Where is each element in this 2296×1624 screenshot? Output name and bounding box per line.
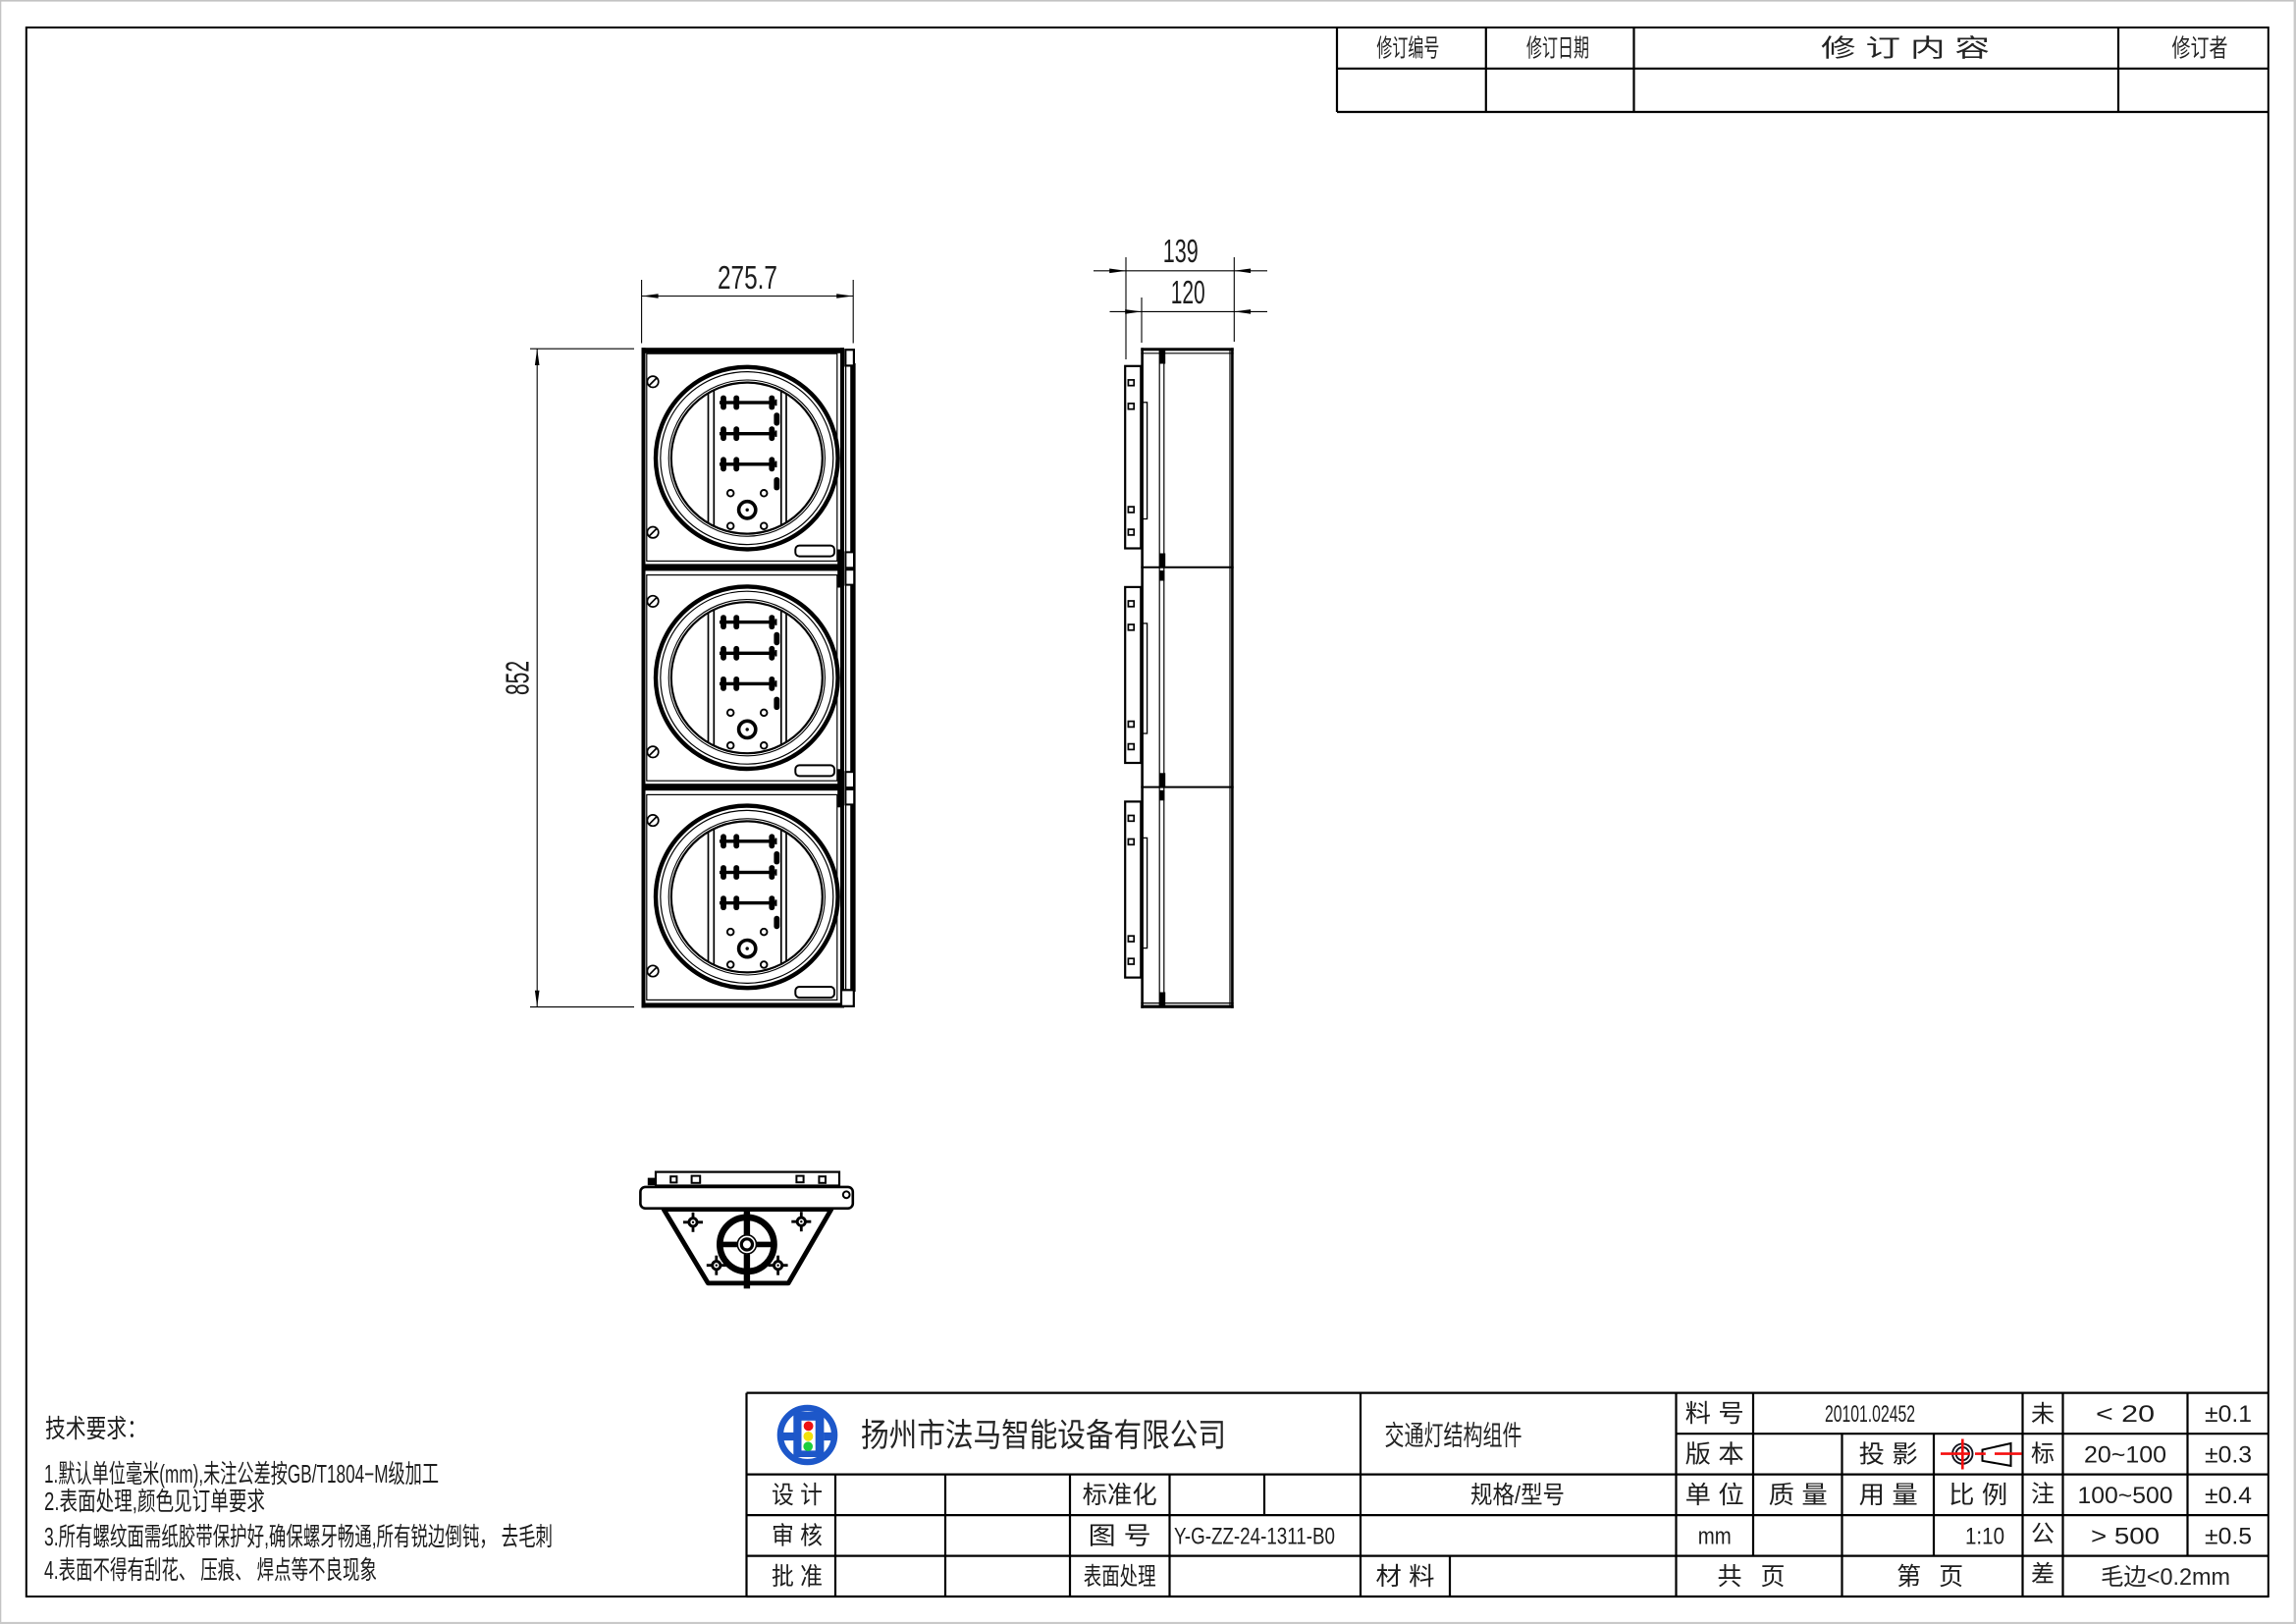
- svg-text:1:10: 1:10: [1965, 1523, 2004, 1549]
- svg-text:页: 页: [1760, 1563, 1785, 1591]
- svg-text:修订编号: 修订编号: [1376, 35, 1439, 63]
- svg-text:技术要求：: 技术要求：: [45, 1414, 147, 1443]
- svg-text:mm: mm: [1698, 1523, 1732, 1549]
- svg-text:公: 公: [2031, 1521, 2055, 1547]
- svg-text:1.默认单位毫米(mm),未注公差按GB/T1804−M级加: 1.默认单位毫米(mm),未注公差按GB/T1804−M级加工: [44, 1459, 439, 1489]
- svg-text:批 准: 批 准: [772, 1563, 823, 1591]
- svg-text:4.表面不得有刮花、 压痕、 焊点等不良现象: 4.表面不得有刮花、 压痕、 焊点等不良现象: [44, 1555, 377, 1585]
- svg-text:852: 852: [500, 661, 536, 695]
- svg-text:修订日期: 修订日期: [1526, 35, 1589, 63]
- svg-text:±0.1: ±0.1: [2205, 1401, 2252, 1428]
- svg-text:修 订 内 容: 修 订 内 容: [1821, 35, 1990, 63]
- svg-text:100~500: 100~500: [2078, 1483, 2173, 1509]
- svg-text:275.7: 275.7: [718, 259, 777, 296]
- svg-text:注: 注: [2031, 1481, 2055, 1507]
- svg-text:±0.3: ±0.3: [2205, 1441, 2252, 1468]
- svg-text:投 影: 投 影: [1859, 1440, 1918, 1468]
- svg-text:规格/型号: 规格/型号: [1470, 1482, 1565, 1509]
- svg-text:修订者: 修订者: [2172, 35, 2228, 63]
- svg-text:审 核: 审 核: [772, 1522, 823, 1549]
- svg-text:139: 139: [1163, 233, 1199, 269]
- svg-text:料 号: 料 号: [1685, 1400, 1744, 1428]
- svg-text:材 料: 材 料: [1376, 1563, 1435, 1591]
- svg-text:毛边<0.2mm: 毛边<0.2mm: [2101, 1564, 2230, 1591]
- svg-text:版 本: 版 本: [1685, 1440, 1744, 1468]
- svg-text:标准化: 标准化: [1083, 1482, 1157, 1509]
- svg-text:3.所有螺纹面需纸胶带保护好,确保螺牙畅通,所有锐边倒钝，: 3.所有螺纹面需纸胶带保护好,确保螺牙畅通,所有锐边倒钝， 去毛刺: [44, 1522, 553, 1551]
- svg-text:页: 页: [1939, 1563, 1963, 1591]
- svg-text:±0.5: ±0.5: [2205, 1523, 2252, 1549]
- svg-text:扬州市法马智能设备有限公司: 扬州市法马智能设备有限公司: [861, 1417, 1226, 1453]
- svg-text:20101.02452: 20101.02452: [1825, 1401, 1915, 1428]
- svg-text:比 例: 比 例: [1949, 1482, 2007, 1509]
- svg-text:未: 未: [2031, 1401, 2055, 1428]
- svg-text:共: 共: [1717, 1563, 1741, 1591]
- svg-text:用 量: 用 量: [1859, 1482, 1918, 1509]
- svg-text:第: 第: [1896, 1563, 1921, 1591]
- svg-text:±0.4: ±0.4: [2205, 1483, 2252, 1509]
- svg-text:差: 差: [2031, 1561, 2055, 1588]
- svg-text:表面处理: 表面处理: [1084, 1563, 1156, 1591]
- svg-text:> 500: > 500: [2091, 1523, 2160, 1549]
- svg-text:标: 标: [2031, 1441, 2055, 1468]
- svg-text:120: 120: [1171, 274, 1205, 310]
- svg-text:图 号: 图 号: [1089, 1522, 1151, 1549]
- svg-text:< 20: < 20: [2096, 1401, 2155, 1428]
- svg-text:交通灯结构组件: 交通灯结构组件: [1385, 1421, 1522, 1451]
- svg-text:20~100: 20~100: [2084, 1441, 2166, 1468]
- svg-text:设 计: 设 计: [772, 1482, 823, 1509]
- svg-text:Y-G-ZZ-24-1311-B0: Y-G-ZZ-24-1311-B0: [1174, 1523, 1335, 1549]
- svg-text:单 位: 单 位: [1685, 1482, 1744, 1509]
- svg-text:2.表面处理,颜色见订单要求: 2.表面处理,颜色见订单要求: [44, 1487, 265, 1516]
- svg-text:质 量: 质 量: [1769, 1482, 1828, 1509]
